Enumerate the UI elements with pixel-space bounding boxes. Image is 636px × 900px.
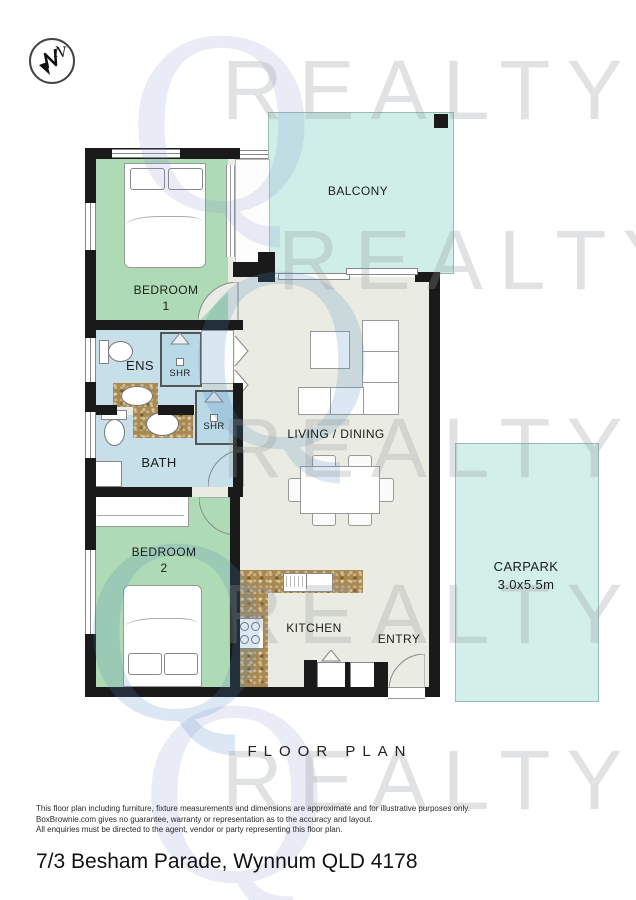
room-label-shr-bath: SHR	[203, 421, 224, 432]
window-bedroom1-left	[85, 203, 96, 250]
wall-balcony-post-left	[258, 252, 275, 282]
ens-sink	[121, 386, 153, 406]
room-label-living-dining: LIVING / DINING	[287, 427, 384, 441]
dining-table	[300, 466, 380, 514]
room-label-kitchen: KITCHEN	[286, 621, 341, 635]
appliance-door-mark	[321, 650, 341, 662]
room-label-bedroom2: BEDROOM 2	[132, 544, 197, 576]
appliance-post-mid	[345, 662, 350, 687]
robe-cupboard	[201, 330, 234, 384]
wall-bath-right	[233, 383, 243, 497]
room-label-entry: ENTRY	[378, 632, 420, 646]
kitchen-sink-drainer	[286, 576, 303, 587]
room-label-carpark-name: CARPARK	[494, 558, 559, 576]
wall-bedroom2-kitchen	[230, 497, 240, 687]
entry-door	[389, 654, 425, 690]
bed2-blanket-line	[125, 618, 198, 627]
sofa-back-cushion	[362, 351, 399, 384]
appliance-left	[317, 662, 346, 688]
cooktop-burner	[240, 635, 249, 644]
wall-right	[429, 272, 440, 697]
wall-bottom-entry-right	[425, 687, 440, 697]
sofa-seat-cushion	[298, 387, 332, 415]
appliance-post-left	[304, 660, 317, 687]
window-bedroom1-void	[226, 165, 235, 257]
bed2-pillow	[128, 653, 162, 675]
room-label-bedroom1-name: BEDROOM	[134, 282, 199, 298]
wall-bottom	[85, 687, 388, 697]
sliding-door-panel	[278, 273, 350, 280]
kitchen-sink-divider	[306, 574, 307, 589]
disclaimer-text: This floor plan including furniture, fix…	[36, 804, 470, 836]
room-label-carpark: CARPARK 3.0x5.5m	[494, 558, 559, 594]
bed1-pillow	[130, 168, 165, 190]
disclaimer-line: This floor plan including furniture, fix…	[36, 804, 470, 815]
coffee-table	[310, 331, 350, 369]
room-label-bedroom2-name: BEDROOM	[132, 544, 197, 560]
bath-toilet-bowl	[104, 419, 125, 446]
wall-bedroom2-door-post	[228, 487, 243, 497]
bedroom2-wardrobe	[94, 494, 189, 527]
appliance-post-right	[374, 662, 388, 687]
appliance-right	[350, 662, 375, 688]
ens-shower-drain	[176, 358, 184, 366]
bath-cabinet	[94, 461, 122, 487]
disclaimer-line: BoxBrownie.com gives no guarantee, warra…	[36, 815, 470, 826]
window-void-top	[240, 150, 268, 159]
room-label-balcony: BALCONY	[328, 184, 388, 198]
cooktop-burner	[240, 622, 249, 631]
ens-shower-head-icon	[170, 333, 190, 345]
floor-plan-title: FLOOR PLAN	[247, 743, 412, 760]
wall-bath-bedroom2	[85, 487, 192, 497]
room-label-bedroom1: BEDROOM 1	[134, 282, 199, 314]
disclaimer-line: All enquiries must be directed to the ag…	[36, 825, 470, 836]
bath-sink	[146, 412, 179, 436]
room-label-bath: BATH	[141, 455, 176, 470]
window-ensuite-left	[85, 338, 96, 382]
room-label-ens: ENS	[126, 358, 154, 373]
bedroom2-wardrobe-rail	[97, 515, 184, 516]
entry-threshold	[388, 687, 425, 699]
sliding-door-panel	[346, 268, 418, 275]
window-bathroom-left	[85, 412, 96, 458]
cooktop-burner	[251, 622, 260, 631]
bedroom1-door	[198, 282, 239, 323]
window-bedroom1-top	[112, 149, 180, 158]
floor-plan-page: N Q REALTY REALTY Q REALTY Q REALTY Q RE…	[0, 0, 636, 900]
bed1-blanket-line	[126, 216, 202, 225]
balcony-corner-post	[434, 114, 448, 128]
sofa-back-cushion	[362, 320, 399, 353]
bed2-pillow	[164, 653, 198, 675]
compass-label: N	[53, 45, 67, 61]
sofa-back-cushion	[362, 382, 399, 415]
wall-bedroom1-ens	[85, 320, 243, 330]
room-label-carpark-size: 3.0x5.5m	[494, 576, 559, 594]
cooktop-burner	[251, 635, 260, 644]
room-label-bedroom2-number: 2	[132, 560, 197, 576]
room-label-bedroom1-number: 1	[134, 298, 199, 314]
void-strip	[235, 159, 270, 265]
bath-shower-head-icon	[204, 391, 224, 403]
sofa-seat-cushion	[330, 387, 364, 415]
bed1-pillow	[168, 168, 203, 190]
wall-ens-bath-b	[158, 405, 194, 415]
compass-north-icon: N	[26, 35, 78, 87]
room-label-shr-ens: SHR	[169, 368, 190, 379]
window-bedroom2-left	[85, 550, 96, 634]
property-address: 7/3 Besham Parade, Wynnum QLD 4178	[36, 850, 418, 874]
dining-chair	[378, 478, 394, 502]
